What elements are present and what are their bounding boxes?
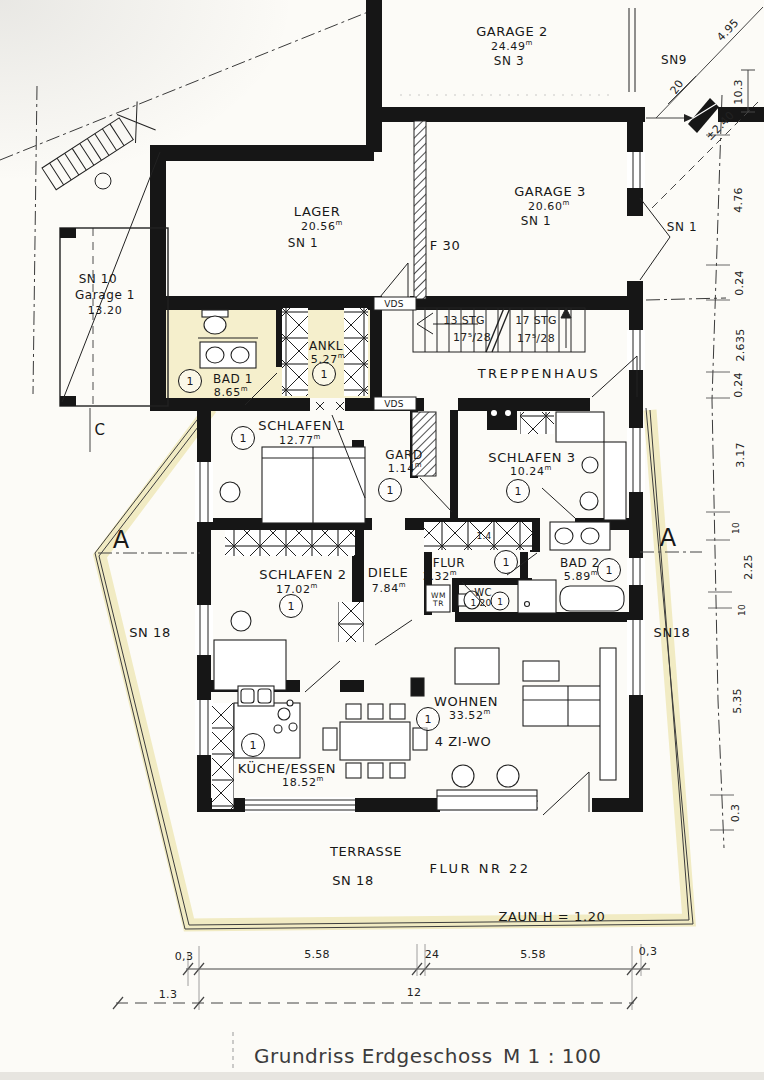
unit-badge-schlafen2: 1: [279, 594, 303, 618]
flur-nr-label: FLUR NR 22: [429, 861, 530, 876]
dim-right-5: 10: [731, 522, 741, 534]
room-area-garage2: 24.49m: [491, 39, 533, 53]
section-marker-a-left: A: [113, 526, 129, 554]
dim-bottom-4: 0,3: [639, 945, 657, 958]
unit-badge-schlafen3: 1: [506, 479, 530, 503]
stair-flight1-label: 13 STG: [443, 314, 485, 327]
room-area-garage1: 13.20: [88, 304, 123, 317]
room-label-treppenhaus: TREPPENHAUS: [478, 366, 601, 381]
room-label-gard: GARD: [385, 448, 423, 462]
room-area-diele: 7.84m: [372, 581, 406, 595]
unit-badge-gard: 1: [378, 478, 402, 502]
zaun-label: ZAUN H = 1.20: [499, 909, 606, 924]
room-sn-garage2: SN 3: [494, 54, 524, 68]
room-area-schlafen2: 17.02m: [276, 582, 318, 596]
dim-right-0: 4.76: [732, 187, 745, 213]
unit-badge-wohnen: 1: [416, 707, 440, 731]
section-marker-a-right: A: [660, 524, 676, 552]
sn18-right-label: SN18: [654, 625, 691, 640]
stair-flight2-step: 17⁵/28: [517, 332, 555, 345]
dim-bottom-2: 24: [425, 948, 440, 961]
dim-bottom-0: 0,3: [175, 950, 193, 963]
dim-bottom-3: 5.58: [520, 948, 546, 961]
unit-badge-flur: 1: [494, 550, 518, 574]
dim-right-2: 2.635: [734, 329, 747, 362]
plan-title: Grundriss Erdgeschoss: [254, 1044, 493, 1068]
room-sn-terrasse: SN 18: [332, 873, 374, 888]
room-label-lager: LAGER: [294, 204, 341, 219]
staircase: [413, 308, 585, 352]
wardrobe-dim-label: 1.4: [476, 531, 491, 541]
dim-right-7: 10: [737, 604, 747, 616]
apartment-type-label: 4 ZI-WO: [435, 734, 492, 749]
unit-badge-wc: 1: [491, 592, 510, 611]
sn9-label: SN9: [661, 53, 687, 67]
room-area-bad1: 8.65m: [214, 385, 248, 399]
sn1-right-label: SN 1: [667, 220, 697, 234]
room-area-lager: 20.56m: [301, 219, 343, 233]
room-label-kueche: KÜCHE/ESSEN: [238, 761, 336, 776]
room-sn-garage3: SN 1: [521, 214, 551, 228]
dim-103: 10.3: [732, 79, 745, 105]
stair-flight1-step: 17⁵/28: [453, 331, 491, 344]
room-area-kueche: 18.52m: [282, 775, 324, 789]
vds-label-bottom: VDS: [384, 399, 404, 409]
unit-badge-schlafen1: 1: [231, 426, 255, 450]
room-label-garage1: Garage 1: [75, 288, 135, 302]
room-label-schlafen2: SCHLAFEN 2: [259, 567, 346, 582]
stair-flight2-label: 17 STG: [515, 314, 557, 327]
dim-right-4: 3.17: [734, 442, 747, 468]
wm-tr-label: WMTR: [427, 587, 450, 612]
room-label-bad1: BAD 1: [213, 372, 253, 386]
f30-label: F 30: [430, 238, 461, 253]
dim-bottom-6: 12: [407, 986, 422, 999]
room-label-schlafen3: SCHLAFEN 3: [488, 450, 575, 465]
room-label-wohnen: WOHNEN: [434, 694, 498, 709]
room-label-bad2: BAD 2: [560, 556, 600, 570]
room-area-garage3: 20.60m: [528, 199, 570, 213]
unit-badge-bad1: 1: [178, 369, 202, 393]
dim-bottom-5: 1.3: [159, 988, 177, 1001]
room-label-diele: DIELE: [368, 565, 409, 580]
room-label-schlafen1: SCHLAFEN 1: [258, 418, 345, 433]
room-label-garage2: GARAGE 2: [476, 24, 548, 39]
plan-scale: M 1 : 100: [503, 1044, 601, 1068]
dim-right-3: 0.24: [732, 372, 745, 398]
dim-bottom-1: 5.58: [304, 948, 330, 961]
dim-right-1: 0.24: [733, 270, 746, 296]
vds-label-top: VDS: [384, 299, 404, 309]
room-area-schlafen1: 12.77m: [279, 433, 321, 447]
section-marker-c: C: [94, 421, 105, 439]
f30-wall: [414, 121, 426, 299]
room-label-ankl: ANKL: [309, 339, 343, 353]
unit-badge-ankl: 1: [312, 362, 336, 386]
unit-badge-bad2: 1: [597, 558, 621, 582]
sn18-left-label: SN 18: [129, 625, 171, 640]
dim-right-9: 0.3: [729, 804, 742, 822]
room-label-terrasse: TERRASSE: [330, 844, 402, 859]
room-area-bad2: 5.89m: [564, 569, 598, 583]
unit-badge-kueche: 1: [241, 733, 265, 757]
garage2-open-side: [629, 8, 635, 92]
dim-right-6: 2.25: [742, 554, 755, 580]
room-sn-garage1: SN 10: [79, 272, 118, 286]
room-area-flur: 3.32m: [423, 569, 457, 583]
room-area-wohnen: 33.52m: [449, 708, 491, 722]
room-label-flur: FLUR: [433, 556, 466, 570]
room-area-wc: 1.20: [470, 598, 491, 608]
room-area-gard: 1.14m: [388, 461, 422, 475]
dim-right-8: 5.35: [731, 688, 744, 714]
room-area-schlafen3: 10.24m: [510, 464, 552, 478]
exterior-stair: [40, 101, 156, 193]
room-label-wc: WC: [474, 587, 491, 598]
room-label-garage3: GARAGE 3: [514, 184, 586, 199]
room-sn-lager: SN 1: [288, 236, 318, 250]
floor-plan: GARAGE 2 24.49m SN 3 LAGER 20.56m SN 1 G…: [0, 0, 764, 1080]
